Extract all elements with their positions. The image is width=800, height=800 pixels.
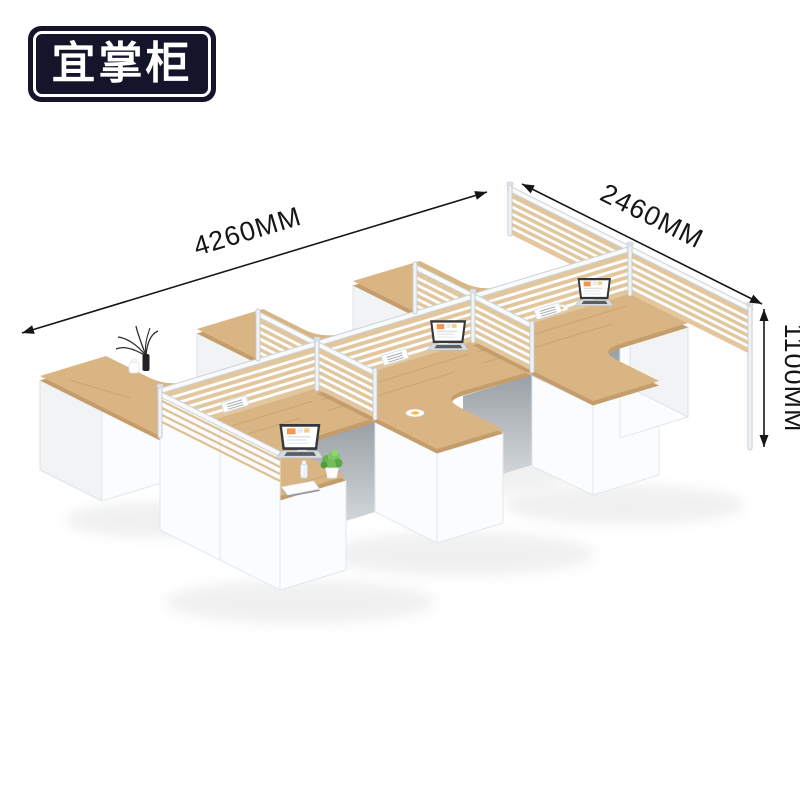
workstation-render: 4260MM 2460MM 1100MM xyxy=(0,0,800,800)
product-image: 4260MM 2460MM 1100MM 宜掌柜 xyxy=(0,0,800,800)
dimension-height-label: 1100MM xyxy=(779,323,800,432)
brand-logo-badge: 宜掌柜 xyxy=(28,26,216,102)
brand-logo-text: 宜掌柜 xyxy=(52,42,193,86)
